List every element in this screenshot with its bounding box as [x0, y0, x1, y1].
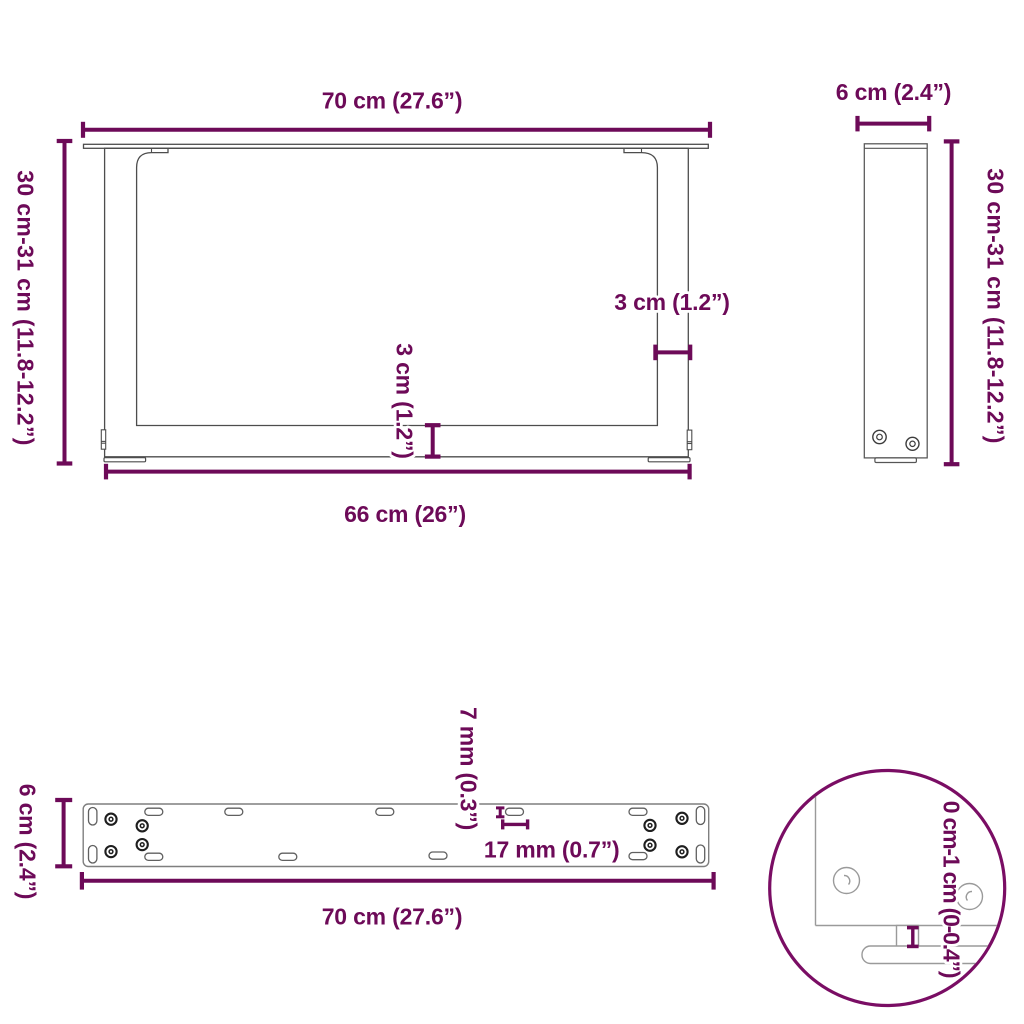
svg-text:3 cm (1.2”): 3 cm (1.2”) — [392, 343, 418, 458]
svg-text:70 cm (27.6”): 70 cm (27.6”) — [322, 904, 463, 930]
svg-text:70 cm (27.6”): 70 cm (27.6”) — [322, 87, 463, 113]
svg-text:30 cm-31 cm (11.8-12.2”): 30 cm-31 cm (11.8-12.2”) — [13, 170, 39, 446]
svg-text:0 cm-1 cm (0-0.4”): 0 cm-1 cm (0-0.4”) — [939, 801, 965, 978]
svg-text:66 cm (26”): 66 cm (26”) — [344, 501, 466, 527]
svg-text:7 mm (0.3”): 7 mm (0.3”) — [456, 707, 482, 830]
svg-text:17 mm (0.7”): 17 mm (0.7”) — [484, 837, 620, 863]
svg-text:6 cm (2.4”): 6 cm (2.4”) — [15, 784, 41, 899]
svg-text:3 cm (1.2”): 3 cm (1.2”) — [614, 289, 729, 315]
svg-text:30 cm-31 cm (11.8-12.2”): 30 cm-31 cm (11.8-12.2”) — [983, 168, 1009, 444]
svg-text:6 cm (2.4”): 6 cm (2.4”) — [836, 79, 951, 105]
